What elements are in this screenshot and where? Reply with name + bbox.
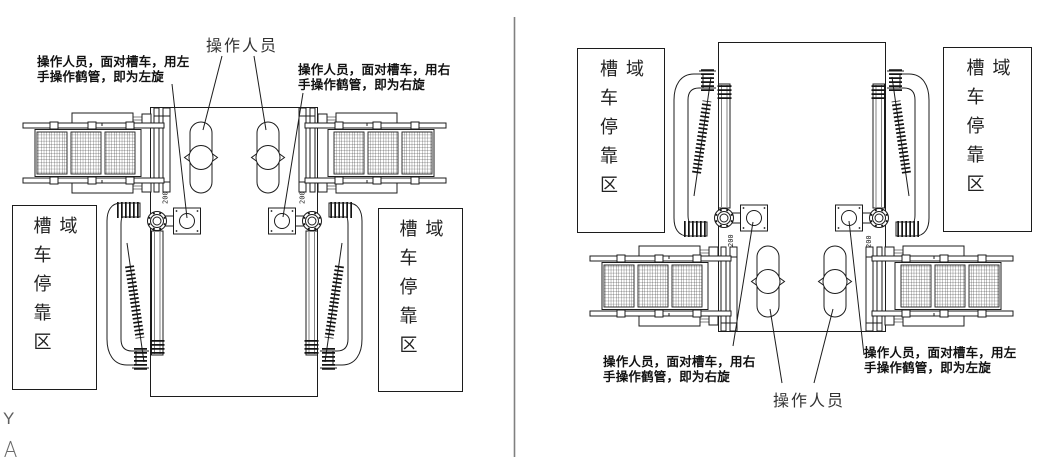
ld-left-note-line1: 操作人员，面对槽车，用左 — [37, 55, 189, 70]
dimension-label: 200 — [727, 234, 735, 247]
rd-left-note: 操作人员，面对槽车，用右 手操作鹤管，即为右旋 — [603, 355, 755, 384]
ld-left-zone-box: 槽车停靠区域 — [12, 205, 97, 390]
dimension-label: 200 — [299, 191, 307, 204]
rd-right-note: 操作人员，面对槽车，用左 手操作鹤管，即为左旋 — [864, 346, 1016, 375]
rd-left-note-line1: 操作人员，面对槽车，用右 — [603, 355, 755, 370]
rd-left-zone-box: 槽车停靠区域 — [577, 48, 665, 233]
y-axis-label: Y — [3, 409, 14, 429]
ld-right-note: 操作人员，面对槽车，用右 手操作鹤管，即为右旋 — [298, 63, 450, 92]
ld-right-note-line1: 操作人员，面对槽车，用右 — [298, 63, 450, 78]
ld-left-note-line2: 手操作鹤管，即为左旋 — [37, 70, 189, 85]
rd-right-zone-box: 槽车停靠区域 — [943, 47, 1032, 232]
ld-right-zone-box: 槽车停靠区域 — [378, 208, 463, 392]
rd-operators-label: 操作人员 — [773, 387, 845, 411]
dimension-label: 200 — [162, 191, 170, 204]
ld-right-note-line2: 手操作鹤管，即为右旋 — [298, 78, 450, 93]
rd-right-note-line1: 操作人员，面对槽车，用左 — [864, 346, 1016, 361]
rd-left-note-line2: 手操作鹤管，即为右旋 — [603, 370, 755, 385]
ld-operators-label: 操作人员 — [206, 32, 278, 56]
ld-left-note: 操作人员，面对槽车，用左 手操作鹤管，即为左旋 — [37, 55, 189, 84]
cad-drawing: 200 200 200 200 操作人员 操作人员，面对槽车，用左 手操作鹤管，… — [0, 0, 1046, 457]
y-axis-arrow-icon — [5, 441, 16, 457]
dimension-label: 200 — [865, 235, 873, 248]
rd-right-note-line2: 手操作鹤管，即为左旋 — [864, 361, 1016, 376]
